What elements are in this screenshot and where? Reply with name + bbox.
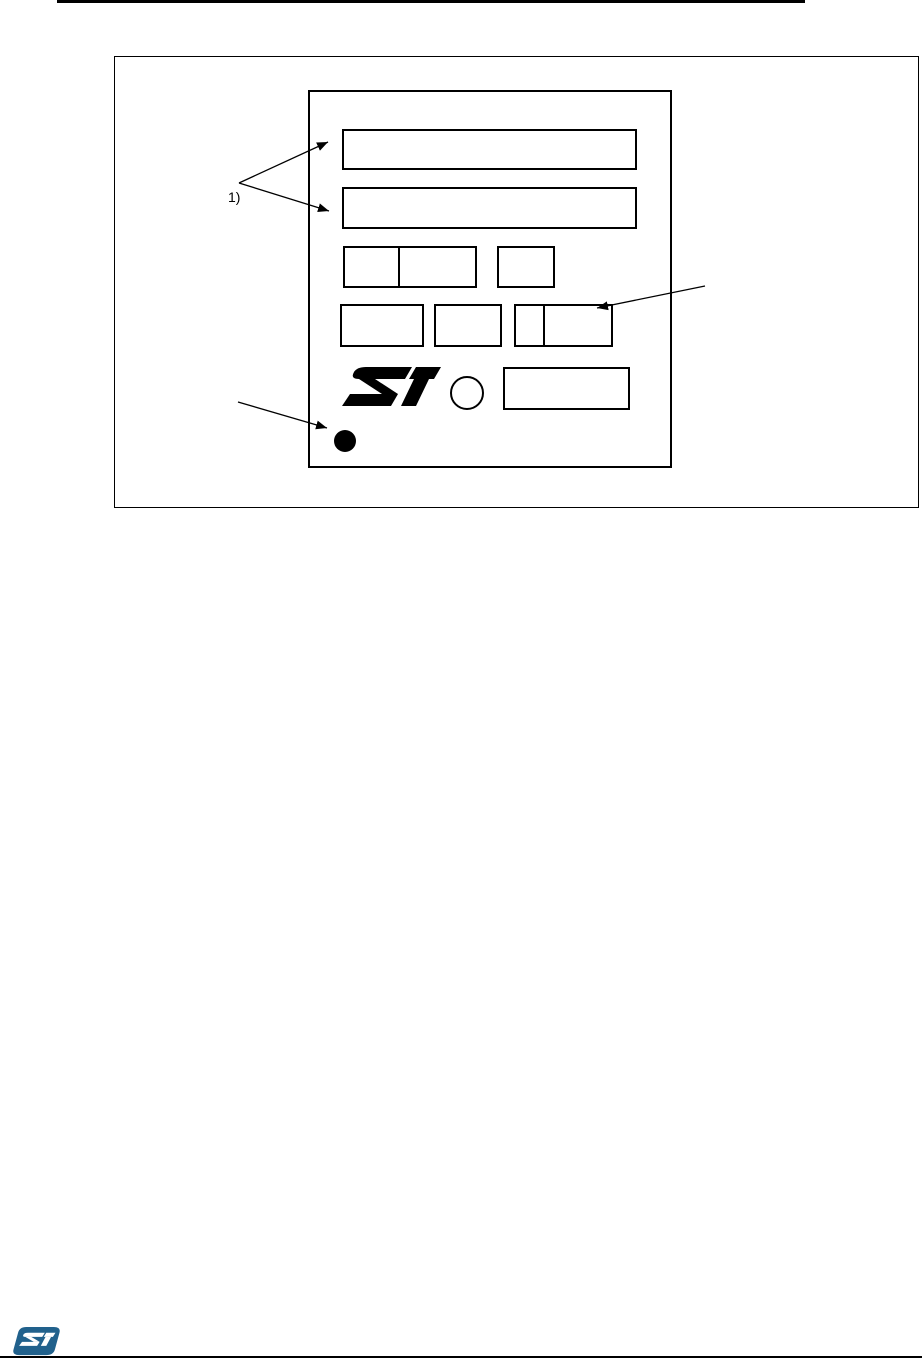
code-box-row2-a <box>340 304 424 347</box>
code-box-row1-split <box>343 246 477 288</box>
code-box-row2-b <box>434 304 502 347</box>
pin-circle-icon <box>450 376 484 410</box>
marking-line1-box <box>342 129 637 170</box>
code-box-divider <box>398 246 400 288</box>
marking-line2-box <box>342 187 637 229</box>
st-logo-icon <box>13 1326 60 1356</box>
pin1-dot-icon <box>334 430 356 452</box>
document-page: 1) <box>0 0 922 1361</box>
footer-rule <box>0 1356 922 1358</box>
date-code-box <box>503 367 630 410</box>
st-logo-icon <box>338 365 442 408</box>
note-label: 1) <box>228 189 240 205</box>
code-box-divider <box>543 304 545 347</box>
header-rule <box>57 0 805 3</box>
code-box-row1-b <box>497 246 555 288</box>
code-box-row2-split <box>514 304 613 347</box>
